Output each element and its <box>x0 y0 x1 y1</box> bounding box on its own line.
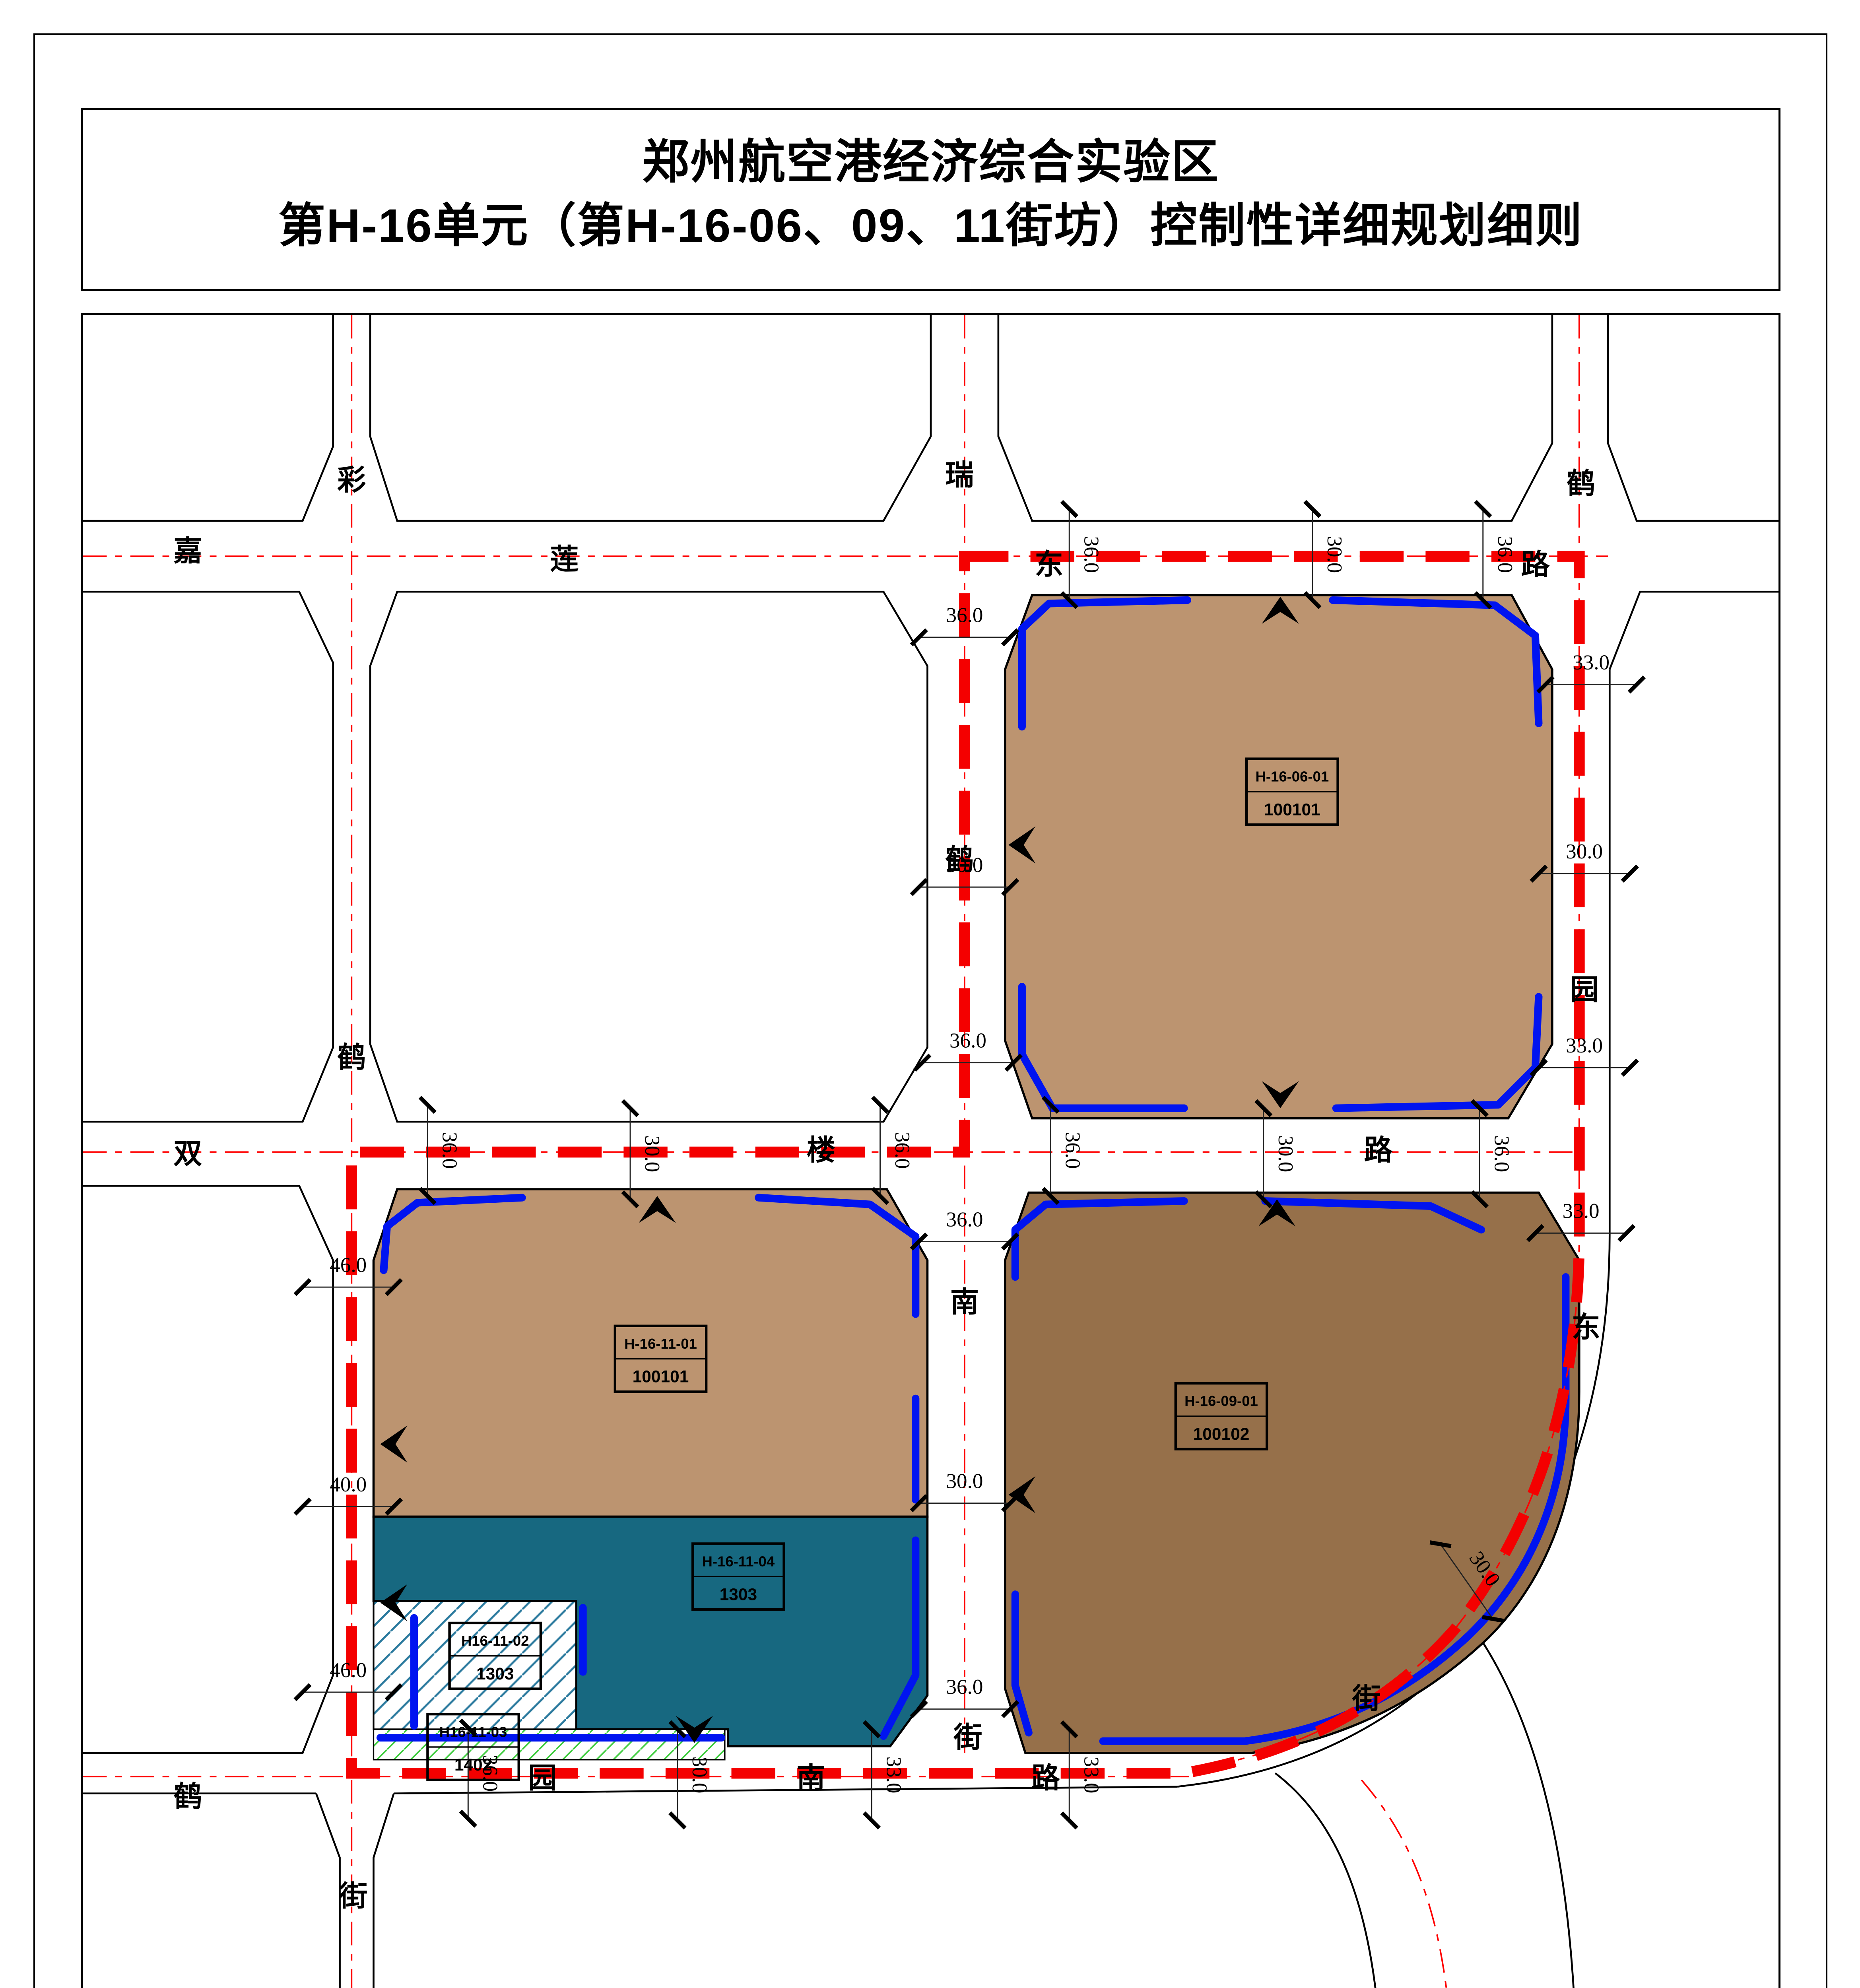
road-name-char-莲: 莲 <box>550 544 579 576</box>
parcel-code: H-16-09-01 <box>1184 1393 1258 1409</box>
road-name-char-东: 东 <box>1572 1312 1600 1343</box>
road-name-char-东: 东 <box>1035 549 1063 580</box>
dimension-value: 36.0 <box>438 1132 461 1169</box>
parcel-code: H-16-11-01 <box>624 1336 697 1352</box>
map-canvas: 36.036.030.036.033.030.036.030.033.036.0… <box>83 315 1778 1988</box>
road-name-char-南: 南 <box>796 1763 825 1794</box>
parcel-green-approved-h16-11-03 <box>373 1729 724 1759</box>
parcel-use-code: 100101 <box>633 1367 689 1386</box>
dimension-value: 30.0 <box>1274 1135 1297 1172</box>
parcel-power-approved-h16-11-02 <box>373 1601 576 1730</box>
road-name-char-街: 街 <box>953 1722 982 1754</box>
road-name-char-鹤: 鹤 <box>945 844 974 876</box>
dimension-value: 36.0 <box>1490 1135 1513 1172</box>
road-name-char-园: 园 <box>1570 974 1598 1006</box>
parcel-code: H16-11-02 <box>461 1633 529 1649</box>
dimension-value: 36.0 <box>946 1208 983 1231</box>
dimension-value: 30.0 <box>1566 840 1603 863</box>
parcel-code: H16-11-03 <box>439 1724 507 1740</box>
plan-sheet: 郑州航空港经济综合实验区 第H-16单元（第H-16-06、09、11街坊）控制… <box>0 0 1860 1988</box>
parcel-use-code: 1303 <box>720 1585 757 1604</box>
road-name-char-路: 路 <box>1521 549 1550 580</box>
road-name-char-鹤: 鹤 <box>173 1781 202 1813</box>
parcel-use-code: 100101 <box>1264 800 1320 819</box>
road-name-char-园: 园 <box>528 1763 557 1794</box>
title-line-1: 郑州航空港经济综合实验区 <box>83 139 1778 186</box>
road-name-char-双: 双 <box>173 1138 202 1170</box>
road-name-char-南: 南 <box>950 1286 979 1318</box>
road-name-char-鹤: 鹤 <box>337 1042 366 1074</box>
dimension-value: 46.0 <box>330 1659 367 1682</box>
road-name-char-嘉: 嘉 <box>173 535 202 567</box>
parcel-code: H-16-06-01 <box>1256 769 1329 785</box>
parcel-industry1-h16-11-01 <box>373 1189 927 1517</box>
dimension-value: 36.0 <box>891 1132 914 1169</box>
dimension-value: 33.0 <box>1079 1757 1103 1794</box>
road-name-char-楼: 楼 <box>807 1134 835 1166</box>
title-line-2: 第H-16单元（第H-16-06、09、11街坊）控制性详细规划细则 <box>83 202 1778 249</box>
dimension-value: 46.0 <box>330 1254 367 1277</box>
dimension-value: 33.0 <box>1566 1034 1603 1057</box>
dimension-value: 30.0 <box>641 1135 664 1172</box>
road-name-char-路: 路 <box>1364 1134 1393 1166</box>
dimension-value: 33.0 <box>1563 1200 1600 1223</box>
parcel-use-code: 1303 <box>476 1664 514 1683</box>
dimension-value: 36.0 <box>949 1029 986 1052</box>
road-name-char-街: 街 <box>338 1881 367 1912</box>
dimension-value: 30.0 <box>946 1470 983 1493</box>
dimension-value: 36.0 <box>1079 536 1103 573</box>
parcel-use-code: 1402 <box>454 1755 492 1774</box>
road-name-char-路: 路 <box>1031 1763 1060 1794</box>
dimension-value: 36.0 <box>1493 536 1516 573</box>
road-name-char-彩: 彩 <box>337 464 366 496</box>
parcel-code: H-16-11-04 <box>702 1553 775 1570</box>
parcel-use-code: 100102 <box>1193 1425 1250 1443</box>
dimension-value: 40.0 <box>330 1473 367 1496</box>
dimension-value: 36.0 <box>946 604 983 627</box>
land-use-map: 36.036.030.036.033.030.036.030.033.036.0… <box>81 313 1780 1988</box>
title-block: 郑州航空港经济综合实验区 第H-16单元（第H-16-06、09、11街坊）控制… <box>81 108 1780 291</box>
dimension-value: 33.0 <box>882 1757 905 1794</box>
parcel-industry1-h16-06-01 <box>1005 595 1552 1118</box>
dimension-value: 36.0 <box>1061 1132 1084 1169</box>
dimension-value: 30.0 <box>1323 536 1346 573</box>
road-name-char-鹤: 鹤 <box>1567 468 1595 500</box>
road-name-char-瑞: 瑞 <box>945 459 974 491</box>
dimension-value: 36.0 <box>946 1675 983 1699</box>
road-name-char-街: 街 <box>1352 1683 1381 1715</box>
dimension-value: 33.0 <box>1573 651 1610 674</box>
dimension-value: 30.0 <box>688 1757 711 1794</box>
